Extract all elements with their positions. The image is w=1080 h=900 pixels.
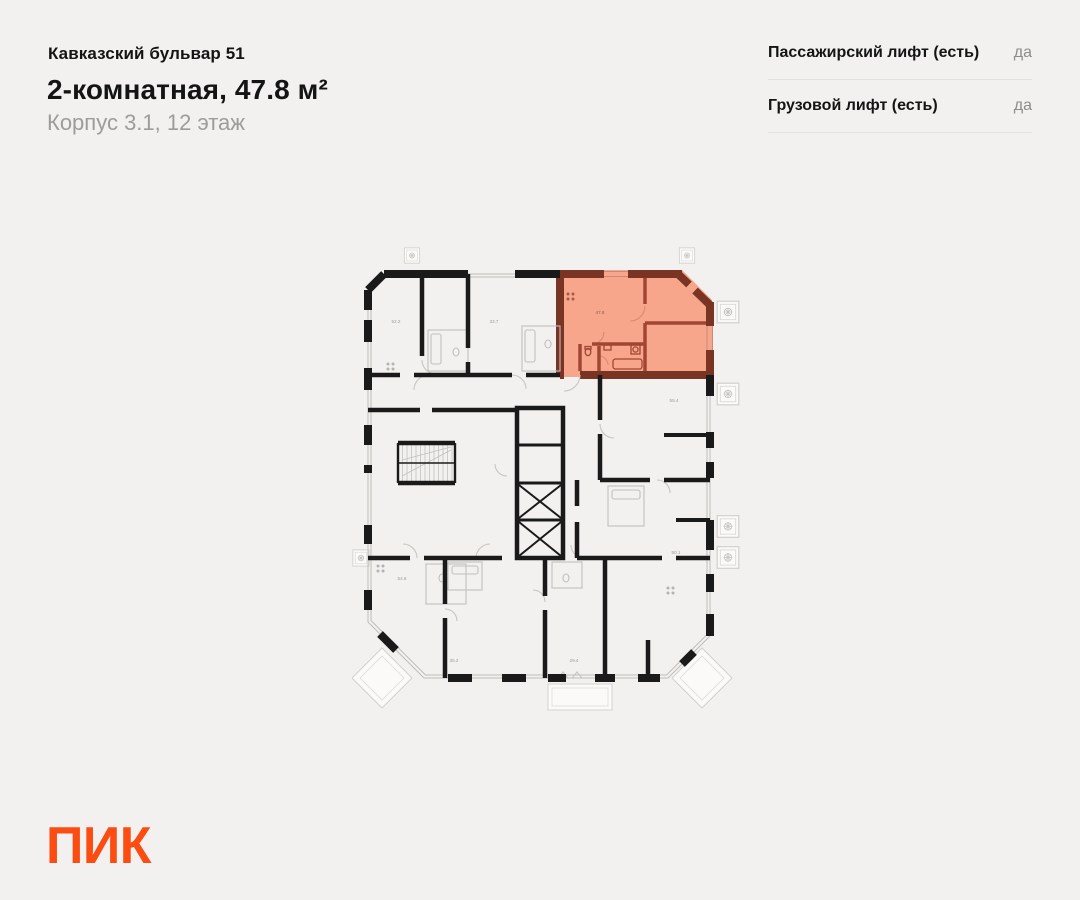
lift-info-row-passenger: Пассажирский лифт (есть) да	[768, 44, 1032, 80]
unit-area-label: 52.2	[392, 319, 401, 324]
lift-info-block: Пассажирский лифт (есть) да Грузовой лиф…	[768, 44, 1032, 150]
page-subtitle: Корпус 3.1, 12 этаж	[47, 110, 245, 136]
unit-area-label: 55.4	[670, 398, 679, 403]
lift-info-value: да	[1014, 44, 1032, 62]
unit-area-label: 35.2	[450, 658, 459, 663]
pik-logo: ПИК	[46, 816, 151, 876]
lift-info-value: да	[1014, 97, 1032, 115]
unit-area-label: 29.4	[570, 658, 579, 663]
stairs-icon	[398, 443, 455, 483]
project-name: Кавказский бульвар 51	[48, 44, 245, 64]
unit-area-label: 50.1	[672, 550, 681, 555]
floor-plan: 47.8	[352, 244, 744, 714]
lift-info-label: Грузовой лифт (есть)	[768, 97, 938, 115]
elevator-shaft-icon	[517, 408, 563, 558]
unit-area-label: 33.7	[490, 319, 499, 324]
lift-info-label: Пассажирский лифт (есть)	[768, 44, 979, 62]
highlighted-area-label: 47.8	[596, 310, 605, 315]
highlighted-apartment[interactable]: 47.8	[557, 270, 713, 377]
page-title: 2-комнатная, 47.8 м²	[47, 74, 328, 106]
unit-area-label: 54.6	[398, 576, 407, 581]
lift-info-row-cargo: Грузовой лифт (есть) да	[768, 97, 1032, 133]
